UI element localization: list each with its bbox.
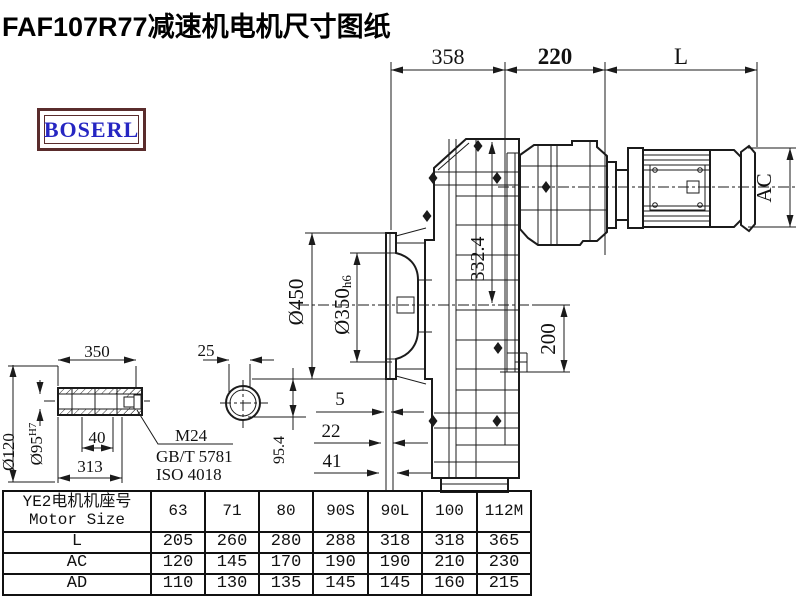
dim-L-label: L: [674, 44, 688, 69]
dim-22-label: 22: [322, 421, 341, 442]
motor-size-table: YE2电机机座号 Motor Size 63 71 80 90S 90L 100…: [2, 490, 532, 596]
dim-spigot-label: Ø350h6: [330, 275, 354, 335]
table-cell: 260: [205, 532, 259, 553]
dim-flange-od-label: Ø450: [284, 279, 308, 326]
row-label: L: [3, 532, 151, 553]
table-cell: 210: [422, 553, 477, 574]
table-cell: 365: [477, 532, 531, 553]
table-cell: 160: [422, 574, 477, 595]
table-header-cn: YE2电机机座号: [4, 494, 150, 512]
shaft-end-section-view: 25: [198, 341, 275, 428]
dim-25-label: 25: [198, 341, 215, 360]
dim-AC-label: AC: [752, 173, 776, 202]
dim-350-label: 350: [84, 342, 110, 361]
table-cell: 130: [205, 574, 259, 595]
bolt-standard-iso-label: ISO 4018: [156, 465, 222, 484]
table-cell: 230: [477, 553, 531, 574]
dim-5-label: 5: [335, 389, 345, 410]
table-cell: 135: [259, 574, 313, 595]
table-header-col: 71: [205, 491, 259, 532]
bolt-diamond-markers: [423, 140, 551, 427]
row-label: AC: [3, 553, 151, 574]
motor: [628, 146, 755, 231]
retaining-bolt-head: [134, 395, 141, 409]
table-cell: 288: [313, 532, 368, 553]
table-header-en: Motor Size: [4, 512, 150, 530]
table-header-col: 90S: [313, 491, 368, 532]
gearbox-motor-side-view: [298, 139, 795, 492]
table-header-col: 63: [151, 491, 205, 532]
dim-40-label: 40: [89, 428, 106, 447]
drawing-page: FAF107R77减速机电机尺寸图纸 BOSERL: [0, 0, 800, 596]
table-header-col: 100: [422, 491, 477, 532]
table-cell: 145: [368, 574, 422, 595]
table-header-col: 112M: [477, 491, 531, 532]
table-cell: 170: [259, 553, 313, 574]
table-row-L: L 205 260 280 288 318 318 365: [3, 532, 531, 553]
dim-od-label: Ø120: [0, 433, 18, 471]
retaining-bolt-shank: [124, 397, 135, 407]
table-cell: 120: [151, 553, 205, 574]
dim-200-label: 200: [536, 323, 560, 355]
table-cell: 145: [313, 574, 368, 595]
table-cell: 205: [151, 532, 205, 553]
table-cell: 318: [422, 532, 477, 553]
table-cell: 190: [368, 553, 422, 574]
table-cell: 280: [259, 532, 313, 553]
table-cell: 215: [477, 574, 531, 595]
dim-220-label: 220: [538, 44, 573, 69]
table-cell: 145: [205, 553, 259, 574]
dim-41-label: 41: [323, 451, 342, 472]
table-header-col: 80: [259, 491, 313, 532]
row-label: AD: [3, 574, 151, 595]
table-row-AC: AC 120 145 170 190 190 210 230: [3, 553, 531, 574]
table-header-motor-size: YE2电机机座号 Motor Size: [3, 491, 151, 532]
bolt-standard-gb-label: GB/T 5781: [156, 447, 233, 466]
table-cell: 318: [368, 532, 422, 553]
hollow-shaft-detail-view: 350 Ø120 Ø95H7 40 313 M24 GB/T 5781 ISO …: [0, 342, 233, 484]
table-cell: 110: [151, 574, 205, 595]
main-view-dimensions: 358 220 L AC Ø450 Ø350h6 332.4 200: [248, 44, 796, 477]
dim-95-label: 95.4: [271, 436, 288, 464]
dim-313-label: 313: [77, 457, 103, 476]
table-header-col: 90L: [368, 491, 422, 532]
dim-bore-label: Ø95H7: [27, 422, 46, 465]
table-cell: 190: [313, 553, 368, 574]
dim-358-label: 358: [432, 44, 465, 69]
bolt-size-label: M24: [175, 426, 208, 445]
table-row-AD: AD 110 130 135 145 145 160 215: [3, 574, 531, 595]
dim-332-label: 332.4: [467, 237, 489, 282]
